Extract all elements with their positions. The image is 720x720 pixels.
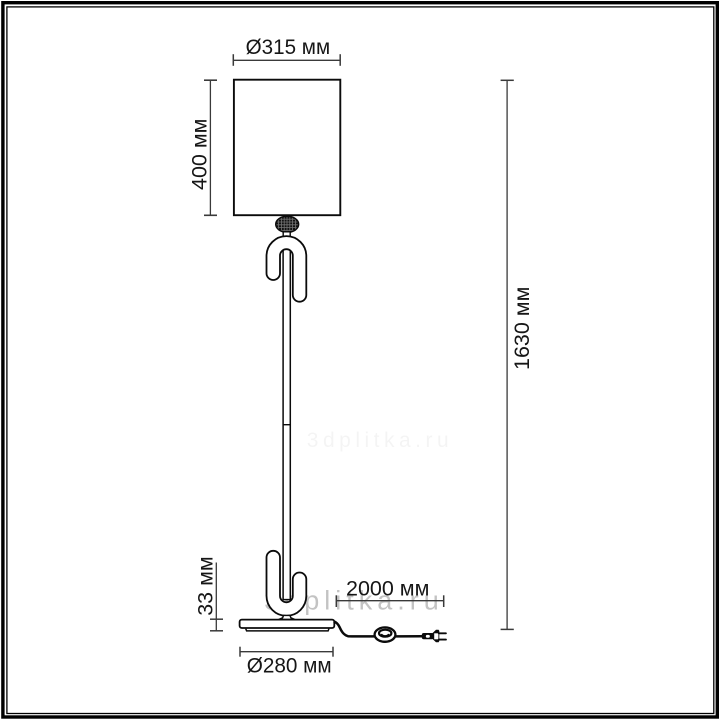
svg-text:2000 мм: 2000 мм [346,576,429,600]
svg-text:Ø315 мм: Ø315 мм [246,35,331,59]
svg-text:400 мм: 400 мм [187,119,211,190]
svg-text:Ø280 мм: Ø280 мм [247,654,332,678]
svg-text:3dplitka.ru: 3dplitka.ru [307,429,453,452]
svg-text:1630 мм: 1630 мм [510,287,534,370]
svg-text:33 мм: 33 мм [194,556,218,615]
